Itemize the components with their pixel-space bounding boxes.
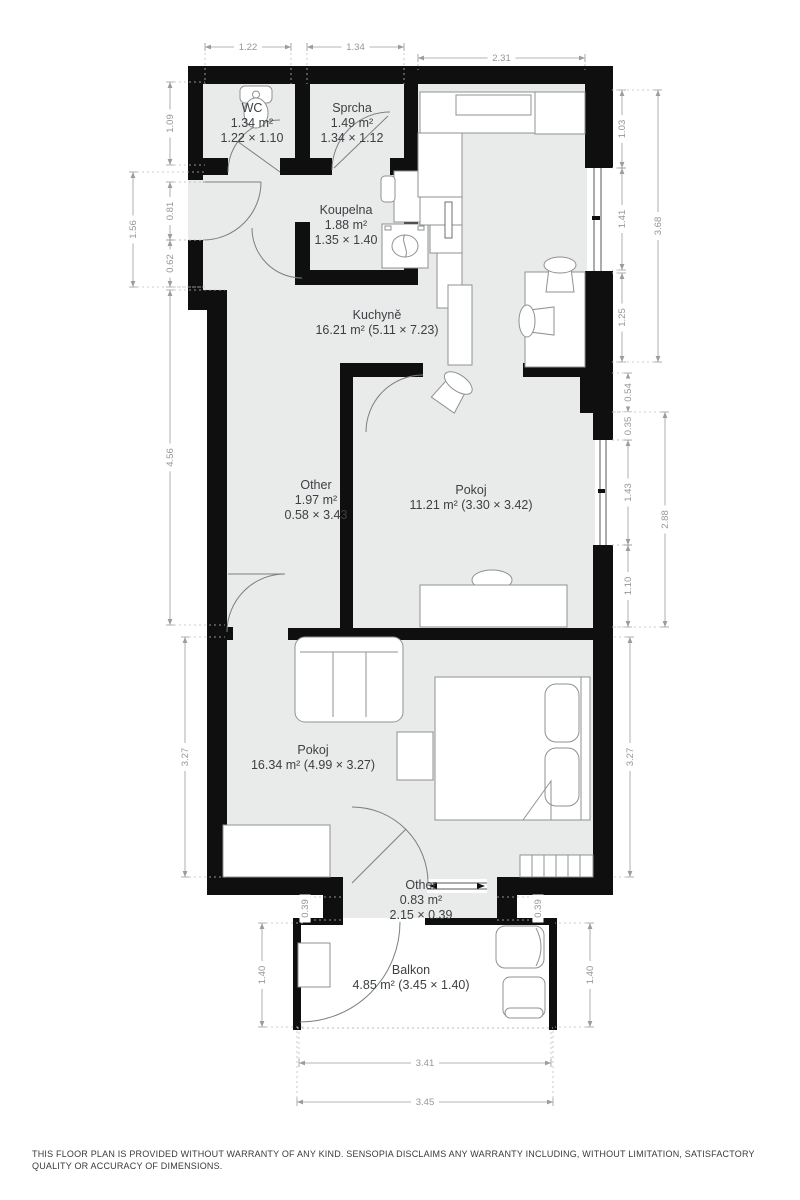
room-name: Sprcha	[332, 101, 372, 115]
balcony-wall	[549, 918, 557, 1030]
dimension: 0.54	[612, 373, 634, 412]
room-measurement: 0.58 × 3.43	[285, 508, 348, 522]
dimension-label: 3.41	[416, 1058, 435, 1069]
dimension-label: 0.62	[165, 254, 176, 273]
dimension: 1.03	[612, 90, 628, 168]
washing-machine-icon	[382, 224, 428, 268]
dimension-label: 1.56	[128, 220, 139, 239]
wardrobe	[223, 825, 330, 877]
dimension: 1.43	[612, 440, 634, 545]
floor-plan-page: 1.221.342.311.090.810.621.564.563.271.03…	[0, 0, 800, 1200]
sofa	[295, 637, 403, 722]
dimension-label: 0.54	[623, 383, 634, 402]
room-measurement: 1.49 m²	[331, 116, 373, 130]
dimension-label: 3.27	[625, 748, 636, 767]
wall	[223, 627, 233, 640]
dimension: 3.27	[612, 637, 636, 877]
wall	[585, 84, 613, 168]
wall	[323, 877, 343, 918]
room-measurement: 0.83 m²	[400, 893, 442, 907]
wall	[188, 290, 227, 310]
wall	[188, 84, 203, 180]
chair-icon	[519, 305, 554, 337]
dimension-label: 0.35	[623, 417, 634, 436]
wall	[580, 363, 613, 413]
room-name: Pokoj	[455, 483, 486, 497]
wall	[188, 240, 203, 292]
wall	[207, 310, 227, 895]
wall	[280, 158, 310, 175]
balcony-armchair-icon	[496, 926, 544, 968]
room-name: Balkon	[392, 963, 430, 977]
dimension-label: 1.09	[165, 114, 176, 133]
room-measurement: 1.34 × 1.12	[321, 131, 384, 145]
wall	[295, 84, 310, 158]
room-measurement: 11.21 m² (3.30 × 3.42)	[409, 498, 532, 512]
room-measurement: 1.97 m²	[295, 493, 337, 507]
dimension-label: 1.34	[346, 42, 365, 53]
dimension: 2.88	[612, 412, 671, 627]
disclaimer-text: THIS FLOOR PLAN IS PROVIDED WITHOUT WARR…	[32, 1148, 762, 1172]
entry-floor	[188, 180, 203, 240]
dimension-label: 0.39	[300, 899, 311, 918]
kitchen-window-icon	[587, 168, 613, 271]
dimension: 1.25	[612, 273, 628, 362]
dimension-label: 1.40	[585, 966, 596, 985]
room-measurement: 1.35 × 1.40	[315, 233, 378, 247]
dimension-label: 3.27	[180, 748, 191, 767]
wall	[497, 877, 517, 918]
dimension-label: 2.88	[660, 510, 671, 529]
dimension-label: 0.81	[165, 202, 176, 221]
room-measurement: 16.34 m² (4.99 × 3.27)	[251, 758, 375, 772]
nightstand	[397, 732, 433, 780]
dimension: 1.41	[612, 168, 628, 270]
dimension-label: 1.41	[617, 210, 628, 229]
wall	[593, 545, 613, 895]
wall	[188, 66, 613, 84]
dimension: 0.35	[612, 412, 634, 440]
wall	[340, 363, 423, 377]
wall	[310, 158, 332, 175]
wall	[203, 158, 228, 175]
room-measurement: 16.21 m² (5.11 × 7.23)	[315, 323, 438, 337]
dimension-label: 1.25	[617, 308, 628, 327]
room-measurement: 1.22 × 1.10	[221, 131, 284, 145]
wall	[585, 271, 613, 363]
dimension-label: 2.31	[492, 53, 511, 64]
dimension-label: 3.45	[416, 1097, 435, 1108]
room-name: Kuchyně	[353, 308, 402, 322]
wall	[207, 877, 343, 895]
dimension-label: 1.10	[623, 577, 634, 596]
dimension-label: 1.40	[257, 966, 268, 985]
dimension-label: 4.56	[165, 448, 176, 467]
radiator	[520, 855, 593, 877]
wall	[593, 413, 613, 440]
room-name: Other	[300, 478, 331, 492]
wall	[295, 270, 418, 285]
bed	[435, 677, 590, 820]
dimension-label: 0.39	[533, 899, 544, 918]
room-name: Pokoj	[297, 743, 328, 757]
room-measurement: 1.34 m²	[231, 116, 273, 130]
wall	[340, 363, 353, 640]
dimension: 3.41	[299, 1030, 551, 1069]
dimension-label: 3.68	[653, 217, 664, 236]
room-measurement: 2.15 × 0.39	[390, 908, 453, 922]
dimension: 1.10	[612, 545, 634, 627]
dimension-label: 1.03	[617, 120, 628, 139]
dimension: 1.40	[555, 923, 596, 1027]
dimension-label: 1.22	[239, 42, 258, 53]
balcony-chair-icon	[503, 977, 545, 1018]
room-name: Other	[405, 878, 436, 892]
dimension-label: 1.43	[623, 483, 634, 502]
room-name: WC	[242, 101, 263, 115]
room-label-balkon: Balkon4.85 m² (3.45 × 1.40)	[352, 963, 469, 992]
room-measurement: 4.85 m² (3.45 × 1.40)	[352, 978, 469, 992]
floor-plan-drawing: 1.221.342.311.090.810.621.564.563.271.03…	[0, 0, 800, 1200]
chair-icon	[544, 257, 576, 292]
room-name: Koupelna	[320, 203, 373, 217]
room-measurement: 1.88 m²	[325, 218, 367, 232]
room-window-icon	[595, 440, 613, 545]
balcony-table	[298, 943, 330, 987]
